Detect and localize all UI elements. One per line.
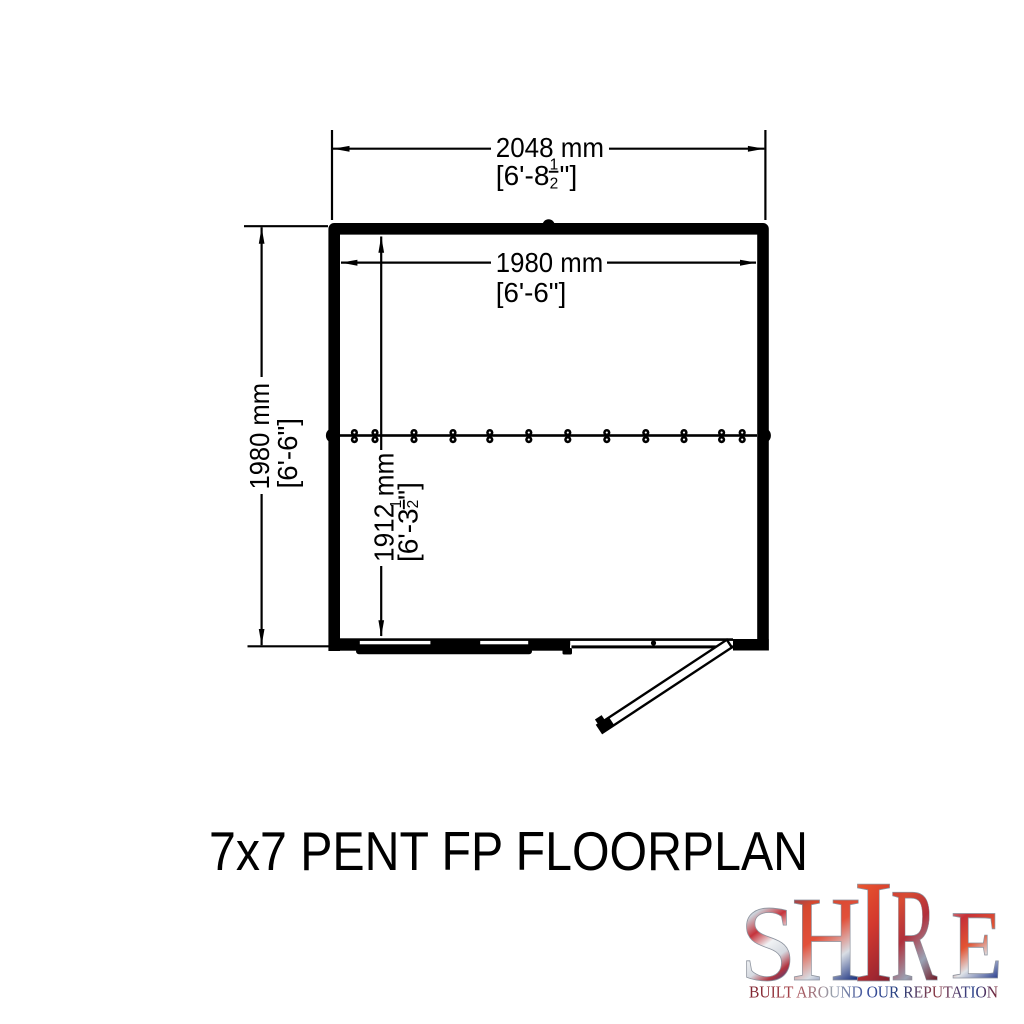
svg-text:[6'-3: [6'-3 <box>393 508 424 562</box>
svg-text:BUILT AROUND OUR REPUTATION: BUILT AROUND OUR REPUTATION <box>749 983 998 1002</box>
svg-text:1: 1 <box>388 500 405 509</box>
svg-text:[6'-8: [6'-8 <box>496 160 550 191</box>
svg-text:[6'-6"]: [6'-6"] <box>496 277 567 308</box>
svg-text:1980 mm: 1980 mm <box>496 247 603 278</box>
svg-text:2: 2 <box>405 500 422 509</box>
svg-text:[6'-6"]: [6'-6"] <box>272 418 303 489</box>
svg-text:1980 mm: 1980 mm <box>244 383 275 490</box>
svg-text:7x7 PENT FP FLOORPLAN: 7x7 PENT FP FLOORPLAN <box>209 821 808 882</box>
svg-text:2: 2 <box>550 176 559 193</box>
svg-text:"]: "] <box>560 160 578 191</box>
svg-text:"]: "] <box>393 482 424 500</box>
